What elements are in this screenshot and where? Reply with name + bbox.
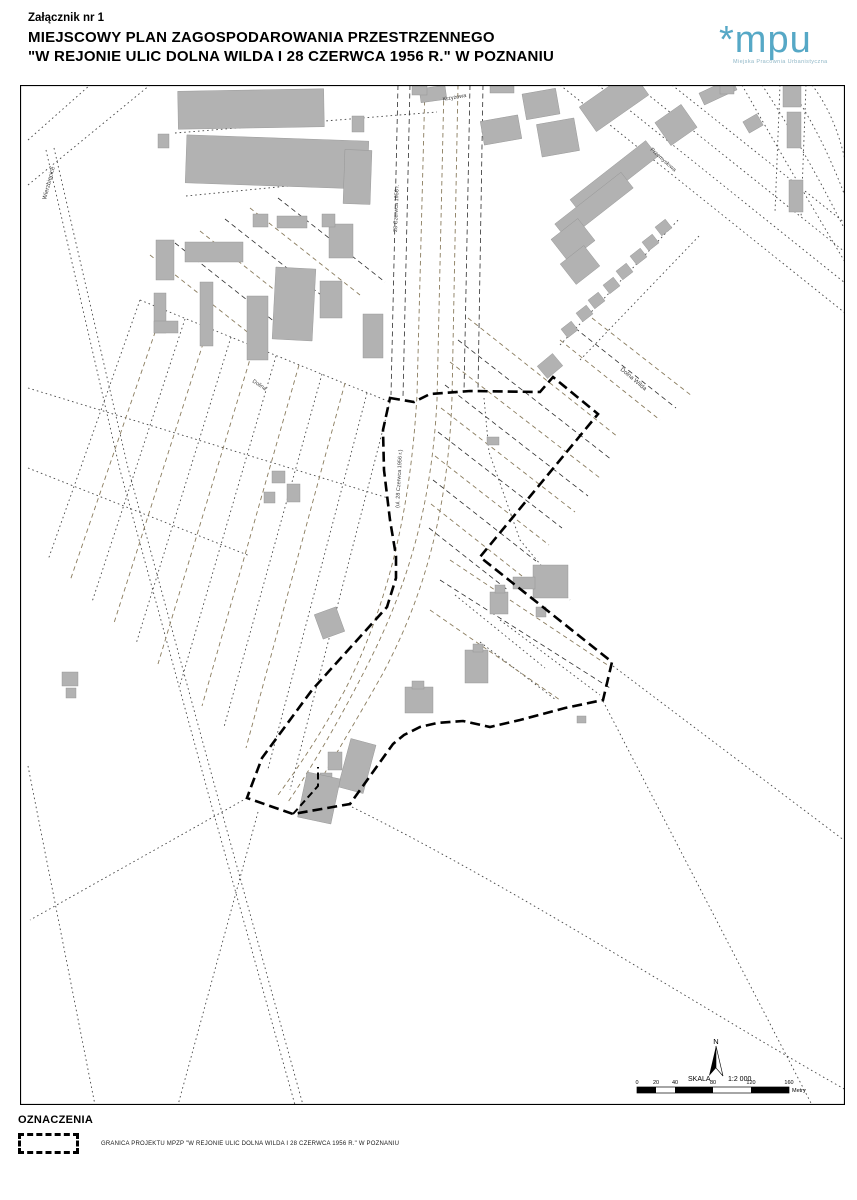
map-line bbox=[603, 701, 812, 1105]
map-frame bbox=[21, 86, 845, 1105]
building-footprint bbox=[247, 296, 268, 360]
building-footprint bbox=[287, 484, 300, 502]
map-line bbox=[352, 807, 845, 1095]
map-line bbox=[672, 85, 845, 223]
building-footprint bbox=[314, 607, 345, 639]
building-footprint bbox=[783, 85, 801, 107]
map-line bbox=[28, 388, 388, 498]
building-footprint bbox=[62, 672, 78, 686]
scale-tick-label: 80 bbox=[710, 1080, 716, 1086]
building-footprint bbox=[66, 688, 76, 698]
building-footprint bbox=[405, 687, 433, 713]
legend-item-label: GRANICA PROJEKTU MPZP "W REJONIE ULIC DO… bbox=[101, 1141, 399, 1147]
scale-tick-label: 40 bbox=[672, 1080, 678, 1086]
building-footprint bbox=[412, 85, 427, 95]
legend-item: GRANICA PROJEKTU MPZP "W REJONIE ULIC DO… bbox=[18, 1133, 399, 1154]
north-arrow: N bbox=[709, 1037, 723, 1076]
attachment-number: Załącznik nr 1 bbox=[28, 12, 554, 24]
building-footprint bbox=[536, 118, 579, 157]
building-footprint bbox=[495, 585, 505, 593]
building-footprint bbox=[320, 281, 342, 318]
building-footprint bbox=[322, 214, 335, 227]
scale-unit: Metry bbox=[792, 1088, 806, 1094]
map-canvas: Wierzbięcice28 Czerwca 1956 r.(ul. 28 Cz… bbox=[20, 85, 845, 1105]
building-footprint bbox=[272, 471, 285, 483]
scale-tick-label: 160 bbox=[784, 1080, 793, 1086]
scale-bar-segment bbox=[713, 1087, 751, 1093]
plan-title-line2: "W REJONIE ULIC DOLNA WILDA I 28 CZERWCA… bbox=[28, 47, 554, 66]
plan-title-line1: MIEJSCOWY PLAN ZAGOSPODAROWANIA PRZESTRZ… bbox=[28, 28, 554, 47]
mpu-logo-subtitle: Miejska Pracownia Urbanistyczna bbox=[733, 59, 839, 65]
building-footprint bbox=[576, 305, 593, 322]
map-line bbox=[458, 340, 612, 460]
map-line bbox=[762, 85, 845, 230]
building-footprint bbox=[616, 263, 633, 280]
map-line bbox=[445, 385, 588, 496]
map-line bbox=[429, 528, 509, 591]
map-line bbox=[403, 85, 410, 397]
building-footprint bbox=[642, 234, 659, 251]
north-label: N bbox=[713, 1037, 718, 1046]
map-line bbox=[48, 300, 140, 560]
map-line bbox=[28, 85, 150, 185]
building-footprint bbox=[363, 314, 383, 358]
building-footprint bbox=[328, 752, 342, 770]
map-line bbox=[114, 328, 208, 623]
building-footprint bbox=[789, 180, 803, 212]
map-line bbox=[46, 150, 295, 1105]
street-label: Przemysłowa bbox=[649, 147, 678, 174]
building-footprint bbox=[412, 681, 424, 689]
building-footprint bbox=[329, 224, 353, 258]
scale-tick-label: 120 bbox=[746, 1080, 755, 1086]
map-line bbox=[575, 328, 676, 408]
street-label: Wierzbięcice bbox=[42, 165, 57, 200]
building-footprint bbox=[630, 248, 647, 265]
building-footprint bbox=[480, 115, 522, 145]
building-footprint bbox=[655, 104, 697, 145]
street-label: 28 Czerwca 1956 r. bbox=[393, 184, 401, 232]
building-footprint bbox=[513, 577, 535, 589]
building-footprint bbox=[561, 321, 578, 338]
map-line bbox=[70, 309, 163, 581]
map-line bbox=[224, 374, 322, 727]
scale-bar-segment bbox=[637, 1087, 656, 1093]
plan-map-svg: Wierzbięcice28 Czerwca 1956 r.(ul. 28 Cz… bbox=[20, 85, 845, 1105]
building-footprint bbox=[264, 492, 275, 503]
building-footprint bbox=[185, 242, 243, 262]
parcel-and-road-lines-layer bbox=[28, 85, 845, 1105]
scale-tick-label: 0 bbox=[635, 1080, 638, 1086]
building-footprint bbox=[298, 772, 341, 824]
building-footprint bbox=[487, 437, 499, 445]
building-footprint bbox=[158, 134, 169, 148]
map-line bbox=[158, 346, 254, 664]
map-line bbox=[28, 85, 90, 140]
map-line bbox=[430, 610, 560, 700]
map-line bbox=[28, 766, 95, 1105]
building-footprint bbox=[537, 353, 563, 378]
north-arrow-left-half bbox=[709, 1046, 716, 1076]
building-footprint bbox=[154, 321, 178, 333]
map-line bbox=[302, 85, 458, 812]
building-footprint bbox=[490, 85, 514, 93]
map-line bbox=[812, 85, 845, 160]
building-footprint bbox=[156, 240, 174, 280]
building-footprint bbox=[253, 214, 268, 227]
map-line bbox=[180, 356, 276, 685]
building-footprint bbox=[465, 650, 488, 683]
map-line bbox=[30, 798, 247, 920]
building-footprint bbox=[603, 277, 620, 294]
building-footprint bbox=[343, 150, 372, 205]
map-line bbox=[290, 402, 390, 790]
map-line bbox=[560, 340, 660, 420]
scale-bar: SKALA 1:2 000 0204080120160 Metry bbox=[635, 1076, 806, 1094]
scale-bar-segment bbox=[751, 1087, 789, 1093]
map-line bbox=[775, 85, 780, 212]
building-footprint bbox=[522, 88, 560, 120]
scale-bar-segment bbox=[675, 1087, 713, 1093]
building-footprint bbox=[720, 85, 734, 94]
building-footprint bbox=[178, 89, 325, 130]
map-line bbox=[136, 337, 231, 644]
building-footprint bbox=[185, 135, 369, 189]
building-footprint bbox=[277, 216, 307, 228]
map-line bbox=[441, 408, 575, 512]
map-line bbox=[268, 393, 367, 769]
scale-bar-segments bbox=[637, 1087, 789, 1093]
scale-bar-segment bbox=[656, 1087, 675, 1093]
map-line bbox=[246, 383, 345, 748]
map-line bbox=[613, 666, 845, 850]
building-footprint bbox=[490, 592, 508, 614]
street-label: (ul. 28 Czerwca 1956 r.) bbox=[395, 449, 404, 508]
street-label: Dolna Wilda bbox=[619, 367, 648, 393]
building-footprint bbox=[200, 282, 213, 346]
building-footprint bbox=[577, 716, 586, 723]
map-line bbox=[54, 148, 303, 1105]
north-arrow-right-half bbox=[716, 1046, 723, 1076]
mpu-logo-mark: *mpu bbox=[719, 22, 839, 58]
scale-bar-ticks: 0204080120160 bbox=[635, 1080, 793, 1086]
mpu-logo: *mpu Miejska Pracownia Urbanistyczna bbox=[719, 22, 839, 65]
building-footprint bbox=[338, 738, 376, 793]
map-line bbox=[742, 85, 845, 262]
map-line bbox=[435, 456, 549, 545]
scale-tick-label: 20 bbox=[653, 1080, 659, 1086]
map-line bbox=[468, 318, 618, 437]
map-line bbox=[464, 85, 470, 392]
map-line bbox=[500, 620, 600, 695]
building-footprint bbox=[473, 644, 483, 652]
map-line bbox=[178, 812, 258, 1105]
map-line bbox=[391, 85, 398, 395]
map-line bbox=[202, 365, 299, 706]
street-label: Dolina bbox=[251, 379, 268, 393]
page-header: Załącznik nr 1 MIEJSCOWY PLAN ZAGOSPODAR… bbox=[28, 12, 554, 66]
legend-heading: OZNACZENIA bbox=[18, 1114, 93, 1126]
building-footprint bbox=[655, 219, 672, 236]
building-footprint bbox=[579, 85, 649, 132]
scale-label: SKALA bbox=[688, 1076, 711, 1083]
building-footprint bbox=[787, 112, 801, 148]
map-line bbox=[28, 468, 250, 556]
map-line bbox=[433, 480, 536, 561]
building-footprint bbox=[588, 292, 605, 309]
map-line bbox=[92, 319, 185, 602]
building-footprint bbox=[533, 565, 568, 598]
building-footprint bbox=[272, 267, 316, 341]
plan-boundary-symbol bbox=[18, 1133, 79, 1154]
building-footprint bbox=[352, 116, 364, 132]
map-line bbox=[450, 362, 600, 478]
